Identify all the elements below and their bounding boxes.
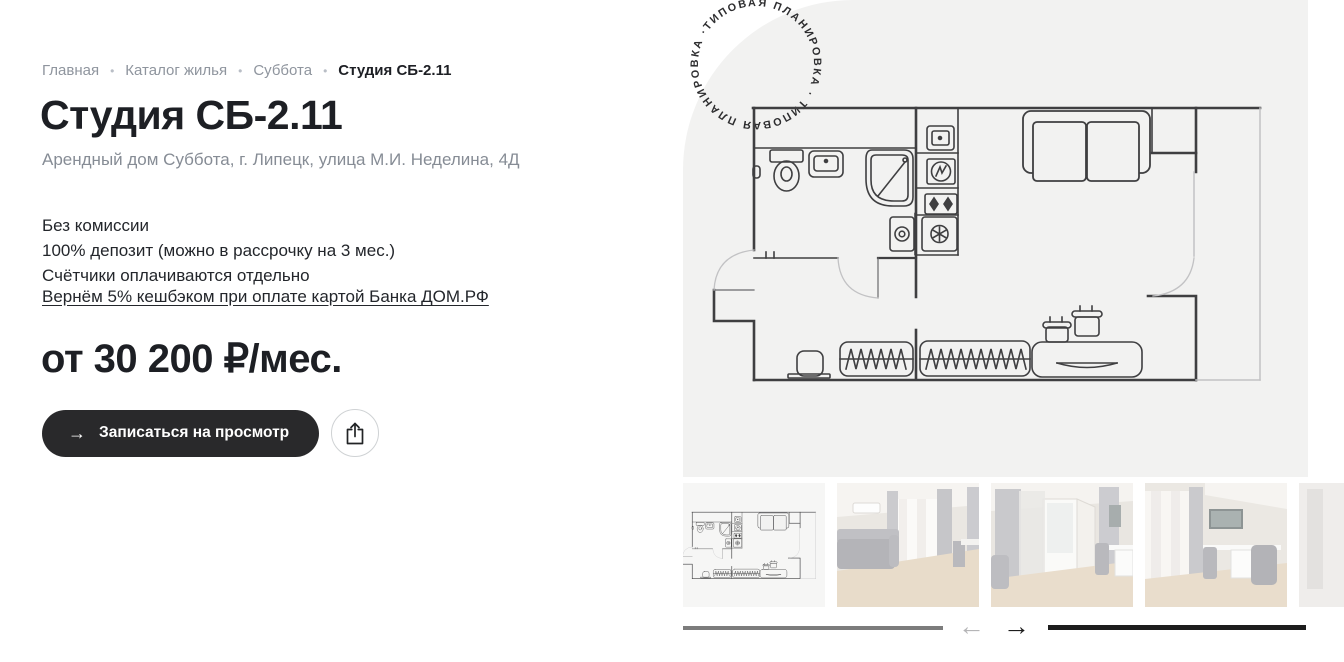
sofa — [1023, 111, 1150, 181]
bathroom-sink — [809, 151, 843, 177]
prev-arrow-icon[interactable]: ← — [958, 611, 985, 642]
floor-plan-drawing: ТИПОВАЯ ПЛАНИРОВКА · ТИПОВАЯ ПЛАНИРОВКА … — [683, 0, 1308, 477]
photo-balcony-door[interactable] — [991, 483, 1133, 607]
breadcrumb-separator: • — [323, 64, 327, 78]
next-arrow-icon[interactable]: → — [1003, 611, 1030, 642]
breadcrumb-link-catalog[interactable]: Каталог жилья — [125, 62, 227, 79]
table — [1032, 306, 1142, 377]
cta-row: → Записаться на просмотр — [42, 409, 379, 457]
cashback-link[interactable]: Вернём 5% кешбэком при оплате картой Бан… — [42, 287, 489, 307]
breadcrumb-separator: • — [110, 64, 114, 78]
breadcrumb: Главная • Каталог жилья • Суббота • Студ… — [42, 62, 451, 79]
listing-address: Арендный дом Суббота, г. Липецк, улица М… — [42, 150, 520, 170]
carousel-track-left[interactable] — [683, 626, 943, 630]
term-deposit: 100% депозит (можно в рассрочку на 3 мес… — [42, 238, 395, 263]
typical-layout-stamp: ТИПОВАЯ ПЛАНИРОВКА · ТИПОВАЯ ПЛАНИРОВКА … — [683, 0, 849, 157]
balcony-glazing — [1194, 108, 1260, 380]
floor-plan-panel: ТИПОВАЯ ПЛАНИРОВКА · ТИПОВАЯ ПЛАНИРОВКА … — [683, 0, 1308, 477]
photo-desk-room[interactable] — [1145, 483, 1287, 607]
share-button[interactable] — [331, 409, 379, 457]
share-icon — [345, 422, 366, 445]
breadcrumb-current: Студия СБ-2.11 — [338, 62, 451, 79]
breadcrumb-separator: • — [238, 64, 242, 78]
stool — [788, 351, 830, 378]
photo-partial-next[interactable] — [1299, 483, 1344, 607]
price: от 30 200 ₽/мес. — [41, 336, 342, 382]
page-title: Студия СБ-2.11 — [40, 92, 342, 139]
photo-gallery — [683, 483, 1344, 607]
breadcrumb-link-home[interactable]: Главная — [42, 62, 99, 79]
kitchen-column — [916, 108, 958, 255]
svg-text:ТИПОВАЯ ПЛАНИРОВКА · ТИПОВАЯ П: ТИПОВАЯ ПЛАНИРОВКА · ТИПОВАЯ ПЛАНИРОВКА … — [683, 0, 849, 157]
carousel-track-right[interactable] — [1048, 625, 1306, 630]
radiators — [840, 341, 1030, 376]
listing-page: Главная • Каталог жилья • Суббота • Студ… — [0, 0, 1344, 662]
term-no-commission: Без комиссии — [42, 213, 395, 238]
arrow-right-icon: → — [68, 423, 86, 444]
floor-plan-thumbnail[interactable] — [683, 483, 825, 607]
washing-machine — [890, 214, 916, 254]
book-viewing-button[interactable]: → Записаться на просмотр — [42, 410, 319, 457]
book-viewing-label: Записаться на просмотр — [99, 424, 289, 442]
shower — [866, 150, 913, 206]
toilet — [753, 150, 803, 191]
breadcrumb-link-subbota[interactable]: Суббота — [253, 62, 312, 79]
photo-sofa-room[interactable] — [837, 483, 979, 607]
term-meters: Счётчики оплачиваются отдельно — [42, 263, 395, 288]
terms-list: Без комиссии 100% депозит (можно в расср… — [42, 213, 395, 288]
